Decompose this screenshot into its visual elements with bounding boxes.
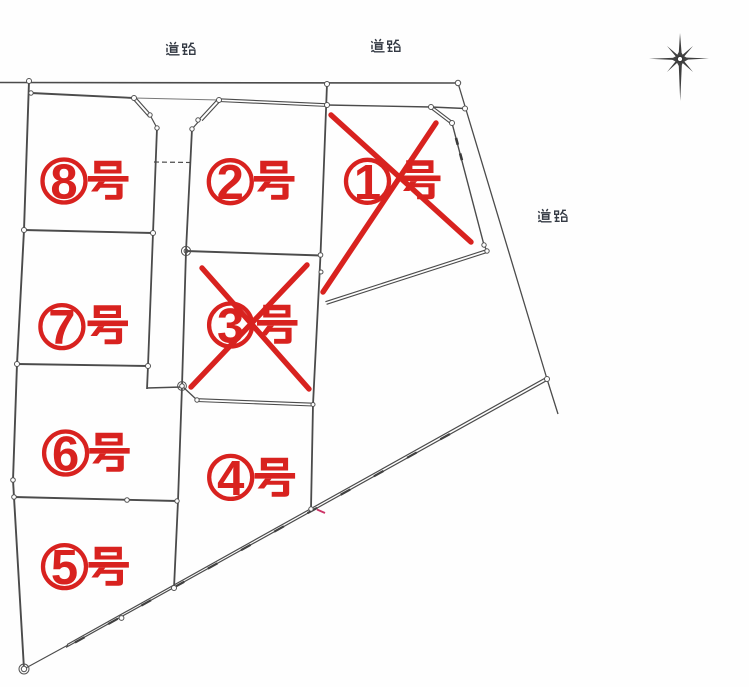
svg-text:8: 8 (50, 156, 77, 210)
svg-text:5: 5 (51, 541, 78, 595)
svg-text:7: 7 (48, 301, 75, 355)
svg-text:6: 6 (52, 428, 79, 482)
svg-text:1: 1 (354, 156, 381, 210)
svg-text:4: 4 (217, 452, 244, 506)
svg-text:2: 2 (217, 156, 244, 210)
